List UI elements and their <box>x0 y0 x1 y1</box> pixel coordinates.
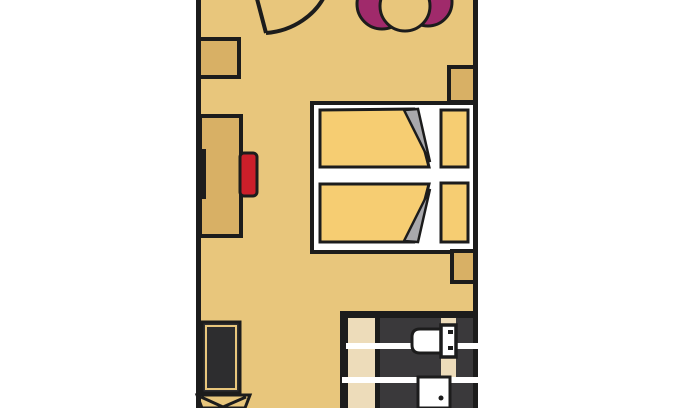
toilet-bolt-top <box>448 330 453 334</box>
luggage-unit <box>202 322 240 393</box>
toilet-bolt-bottom <box>448 346 453 350</box>
wall-bathroom-left <box>340 311 348 408</box>
wardrobe <box>199 39 239 77</box>
bathroom-door-handle <box>439 396 444 401</box>
pillow-bottom <box>441 183 468 242</box>
nightstand-bottom <box>452 251 476 282</box>
wall-bathroom-top <box>340 311 478 318</box>
floor-plan <box>0 0 680 408</box>
desk-chair-red <box>240 153 257 196</box>
vanity-counter <box>348 318 375 408</box>
toilet-cistern <box>441 325 456 357</box>
toilet-bowl <box>412 329 444 353</box>
counter-below-toilet <box>441 357 456 377</box>
pillow-top <box>441 110 468 167</box>
bathroom-door <box>418 377 450 408</box>
desk <box>200 116 241 236</box>
wall-left <box>196 0 201 408</box>
nightstand-top <box>449 67 476 102</box>
bathroom-partition-bottom <box>342 377 480 383</box>
vanity-edge <box>375 318 380 408</box>
